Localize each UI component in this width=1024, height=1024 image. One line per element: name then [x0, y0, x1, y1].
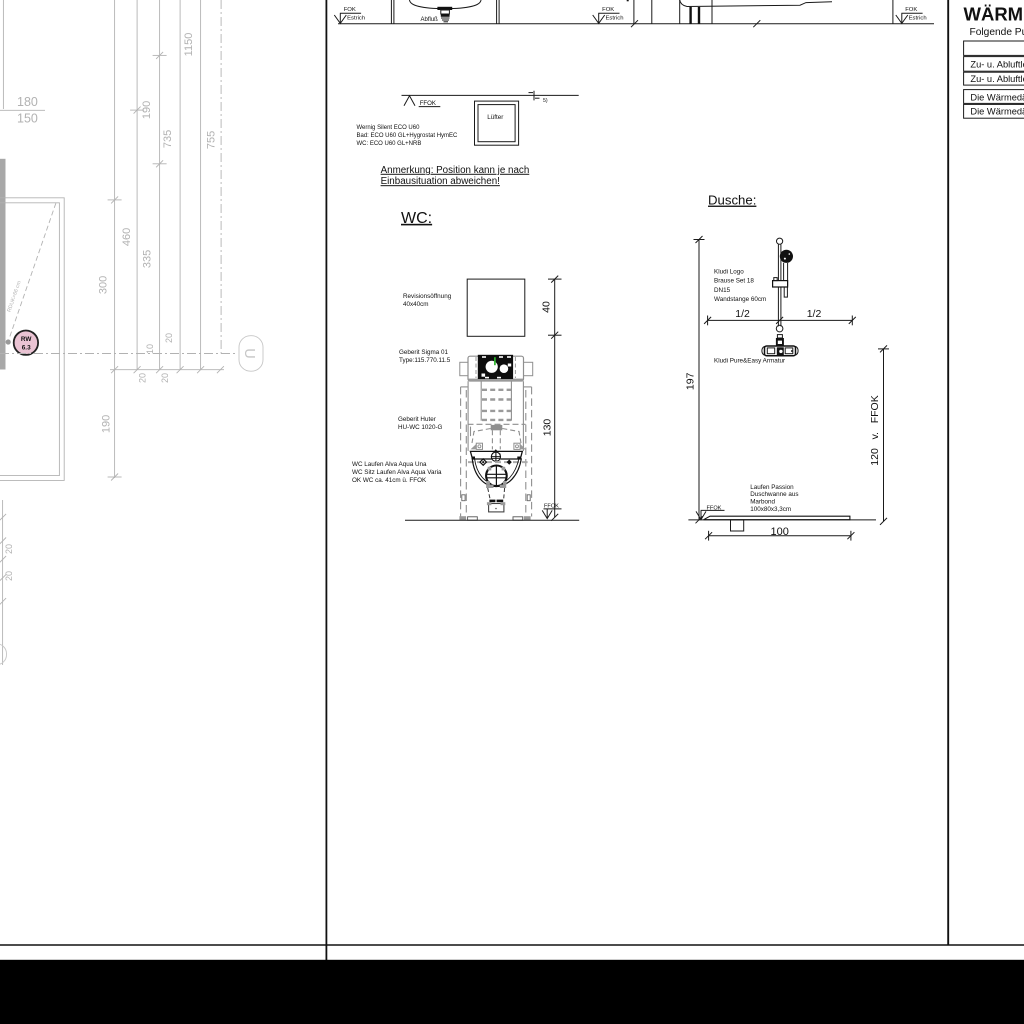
svg-text:Geberit Sigma 01: Geberit Sigma 01 — [399, 349, 448, 356]
svg-text:FFOK: FFOK — [707, 506, 722, 512]
svg-text:Wernig Silent ECO U60: Wernig Silent ECO U60 — [357, 125, 421, 131]
svg-text:150: 150 — [17, 112, 38, 126]
svg-text:Einbausituation abweichen!: Einbausituation abweichen! — [381, 176, 500, 187]
svg-text:735: 735 — [162, 130, 174, 148]
svg-text:120 v. FFOK: 120 v. FFOK — [869, 395, 881, 465]
svg-text:Zu- u. Abluftleitungen: Zu- u. Abluftleitungen — [970, 74, 1024, 84]
svg-text:Estrich: Estrich — [347, 16, 365, 22]
svg-text:1/2: 1/2 — [807, 308, 822, 320]
svg-text:WC: ECO U60 GL+NRB: WC: ECO U60 GL+NRB — [357, 141, 422, 147]
svg-text:WC:: WC: — [401, 210, 432, 227]
svg-text:Laufen Passion: Laufen Passion — [750, 484, 794, 491]
svg-text:197: 197 — [685, 372, 697, 390]
svg-text:U: U — [241, 348, 257, 358]
svg-text:FFOK: FFOK — [544, 504, 559, 510]
svg-text:20: 20 — [4, 571, 14, 581]
svg-text:Brause Set 18: Brause Set 18 — [714, 278, 754, 285]
svg-text:180: 180 — [17, 95, 38, 109]
svg-text:Estrich: Estrich — [909, 16, 927, 22]
svg-text:100x80x3,3cm: 100x80x3,3cm — [750, 506, 791, 513]
svg-text:5): 5) — [543, 98, 548, 104]
svg-text:755: 755 — [206, 131, 218, 149]
svg-text:40x40cm: 40x40cm — [403, 301, 429, 308]
svg-text:FOK: FOK — [344, 7, 356, 13]
svg-text:20: 20 — [164, 333, 174, 343]
svg-text:FOK: FOK — [905, 7, 917, 13]
svg-text:Geberit Huter: Geberit Huter — [398, 416, 436, 423]
svg-text:Estrich: Estrich — [606, 16, 624, 22]
svg-text:20: 20 — [4, 544, 14, 554]
svg-text:Bad: ECO U60 GL+Hygrostat HymE: Bad: ECO U60 GL+Hygrostat HymEC — [357, 133, 459, 139]
svg-text:20: 20 — [160, 373, 170, 383]
svg-text:Marbond: Marbond — [750, 499, 775, 506]
svg-text:RW: RW — [21, 336, 32, 343]
svg-text:Type:115.770.11.5: Type:115.770.11.5 — [399, 357, 451, 364]
svg-text:WÄRMEDÄMMUNG: WÄRMEDÄMMUNG — [964, 3, 1024, 24]
svg-text:300: 300 — [98, 276, 110, 294]
svg-text:Anmerkung: Position kann je na: Anmerkung: Position kann je nach — [381, 165, 530, 176]
svg-text:1/2: 1/2 — [735, 308, 750, 320]
svg-text:40: 40 — [540, 301, 552, 313]
svg-text:Folgende Punkte sind zu beacht: Folgende Punkte sind zu beachten — [970, 27, 1024, 38]
svg-text:Revisionsöffnung: Revisionsöffnung — [403, 293, 452, 300]
svg-text:FOK: FOK — [602, 7, 614, 13]
svg-text:HU-WC 1020-G: HU-WC 1020-G — [398, 424, 443, 431]
svg-text:10: 10 — [145, 344, 155, 354]
svg-text:Die Wärmedämmung: Die Wärmedämmung — [970, 107, 1024, 117]
svg-text:WC Laufen Alva Aqua Una: WC Laufen Alva Aqua Una — [352, 461, 427, 468]
svg-text:RDUK=66 cm: RDUK=66 cm — [6, 280, 22, 313]
svg-text:Abfluß: Abfluß — [421, 17, 439, 23]
svg-text:460: 460 — [121, 228, 133, 246]
svg-text:Wandstange 60cm: Wandstange 60cm — [714, 296, 766, 303]
svg-text:100: 100 — [771, 526, 789, 538]
svg-text:Dusche:: Dusche: — [708, 193, 756, 208]
svg-text:OK WC ca. 41cm ü. FFOK: OK WC ca. 41cm ü. FFOK — [352, 477, 427, 484]
svg-text:Lüfter: Lüfter — [487, 114, 503, 121]
svg-text:1150: 1150 — [183, 33, 195, 57]
svg-text:FFOK: FFOK — [420, 100, 436, 107]
svg-text:Kludi Logo: Kludi Logo — [714, 268, 744, 275]
svg-text:Die Wärmedämmung: Die Wärmedämmung — [970, 92, 1024, 102]
svg-text:335: 335 — [142, 250, 154, 268]
svg-text:190: 190 — [141, 101, 153, 119]
svg-text:6.3: 6.3 — [22, 345, 31, 352]
svg-text:Zu- u. Abluftleitungen: Zu- u. Abluftleitungen — [970, 59, 1024, 69]
svg-text:DN15: DN15 — [714, 287, 731, 294]
svg-text:Duschwanne aus: Duschwanne aus — [750, 491, 798, 498]
svg-text:20: 20 — [138, 373, 148, 383]
svg-text:130: 130 — [541, 419, 553, 437]
svg-text:WC Sitz Laufen Alva Aqua Varia: WC Sitz Laufen Alva Aqua Varia — [352, 469, 442, 476]
svg-text:190: 190 — [101, 415, 113, 433]
svg-text:Kludi Pure&Easy Armatur: Kludi Pure&Easy Armatur — [714, 357, 785, 364]
